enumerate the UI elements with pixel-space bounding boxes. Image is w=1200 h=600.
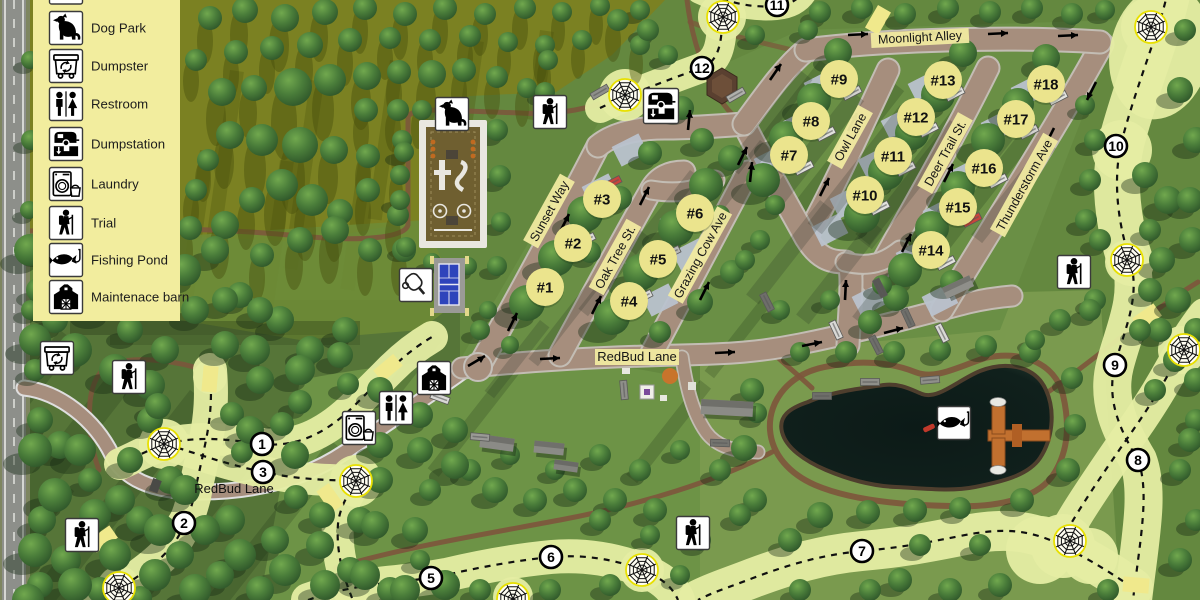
svg-text:#15: #15	[945, 200, 970, 217]
svg-text:#17: #17	[1003, 112, 1028, 129]
svg-text:12: 12	[694, 60, 710, 76]
svg-text:#5: #5	[650, 252, 667, 269]
svg-text:Trial: Trial	[91, 216, 116, 231]
svg-text:5: 5	[427, 570, 435, 586]
svg-text:Restroom: Restroom	[91, 97, 148, 112]
svg-text:9: 9	[1111, 357, 1119, 373]
svg-text:8: 8	[1134, 452, 1142, 468]
svg-text:10: 10	[1108, 138, 1124, 154]
svg-text:#6: #6	[687, 206, 704, 223]
svg-text:Fishing Pond: Fishing Pond	[91, 253, 168, 268]
svg-text:#4: #4	[621, 294, 638, 311]
svg-text:#9: #9	[831, 72, 848, 89]
svg-text:Maintenace barn: Maintenace barn	[91, 290, 189, 305]
svg-text:#12: #12	[903, 110, 928, 127]
svg-text:11: 11	[770, 0, 785, 13]
svg-text:RedBud Lane: RedBud Lane	[597, 349, 677, 364]
svg-text:#7: #7	[781, 148, 798, 165]
svg-text:1: 1	[258, 436, 266, 452]
svg-text:#1: #1	[537, 280, 554, 297]
svg-text:Dog Park: Dog Park	[91, 21, 146, 36]
svg-text:#8: #8	[803, 114, 820, 131]
svg-text:#13: #13	[930, 73, 955, 90]
svg-text:3: 3	[259, 464, 267, 480]
svg-text:#10: #10	[852, 188, 877, 205]
svg-text:#3: #3	[594, 192, 611, 209]
svg-text:#14: #14	[918, 243, 944, 260]
svg-text:2: 2	[180, 515, 188, 531]
svg-text:Dumpster: Dumpster	[91, 59, 149, 74]
svg-text:#2: #2	[565, 236, 582, 253]
svg-text:#16: #16	[971, 161, 996, 178]
svg-text:#11: #11	[881, 149, 905, 166]
svg-text:Dumpstation: Dumpstation	[91, 137, 165, 152]
svg-text:#18: #18	[1033, 77, 1058, 94]
svg-text:6: 6	[547, 549, 555, 565]
svg-text:7: 7	[858, 543, 866, 559]
svg-text:Laundry: Laundry	[91, 177, 139, 192]
